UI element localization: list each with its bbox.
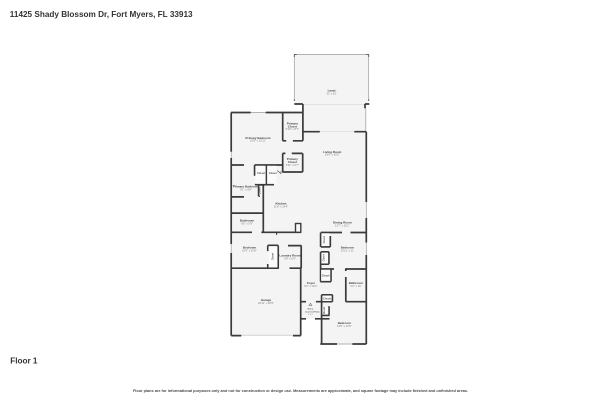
svg-text:6' x 5': 6' x 5' bbox=[308, 314, 314, 316]
svg-text:13'7" x 10'1": 13'7" x 10'1" bbox=[335, 223, 350, 227]
svg-text:Closet: Closet bbox=[323, 236, 326, 243]
svg-text:Closet: Closet bbox=[269, 172, 277, 175]
svg-text:Floor 1: Floor 1 bbox=[10, 357, 38, 366]
svg-text:6'1" x 10'4": 6'1" x 10'4" bbox=[304, 284, 317, 288]
svg-text:21' x 15': 21' x 15' bbox=[327, 91, 337, 95]
svg-text:Closet: Closet bbox=[323, 298, 331, 301]
svg-text:Entry: Entry bbox=[308, 307, 314, 310]
svg-text:11425 Shady Blossom Dr, Fort M: 11425 Shady Blossom Dr, Fort Myers, FL 3… bbox=[10, 10, 193, 19]
svg-text:Closet: Closet bbox=[259, 187, 262, 194]
svg-text:Closet: Closet bbox=[323, 307, 326, 314]
svg-text:5'10" x 8'7": 5'10" x 8'7" bbox=[286, 127, 299, 131]
svg-text:13'5" x 12'5": 13'5" x 12'5" bbox=[337, 324, 352, 328]
svg-text:10'9" x 10'8": 10'9" x 10'8" bbox=[242, 249, 257, 253]
svg-text:6'8" x 6'9": 6'8" x 6'9" bbox=[284, 256, 296, 260]
svg-text:Closet: Closet bbox=[271, 253, 274, 260]
svg-text:20'11" x 20'5": 20'11" x 20'5" bbox=[258, 301, 274, 305]
svg-text:6'2" x 10': 6'2" x 10' bbox=[350, 284, 361, 288]
svg-text:9'1" x 9'8": 9'1" x 9'8" bbox=[240, 187, 252, 191]
svg-text:9'5" x 5'9": 9'5" x 5'9" bbox=[241, 222, 253, 226]
svg-text:Closet: Closet bbox=[257, 172, 265, 175]
svg-text:Closet: Closet bbox=[322, 274, 330, 277]
svg-text:10'11" x 11': 10'11" x 11' bbox=[341, 249, 355, 253]
svg-text:15'8" x 15'11": 15'8" x 15'11" bbox=[250, 138, 266, 142]
svg-text:19'4" x 30'5": 19'4" x 30'5" bbox=[325, 153, 340, 157]
svg-text:Covered Patio: Covered Patio bbox=[305, 311, 320, 314]
svg-text:5'11" x 5'7": 5'11" x 5'7" bbox=[286, 163, 299, 167]
svg-text:Closet: Closet bbox=[323, 254, 326, 261]
svg-text:Floor plans are for informatio: Floor plans are for informational purpos… bbox=[133, 389, 468, 393]
svg-text:11'6" x 14'4": 11'6" x 14'4" bbox=[274, 205, 289, 209]
